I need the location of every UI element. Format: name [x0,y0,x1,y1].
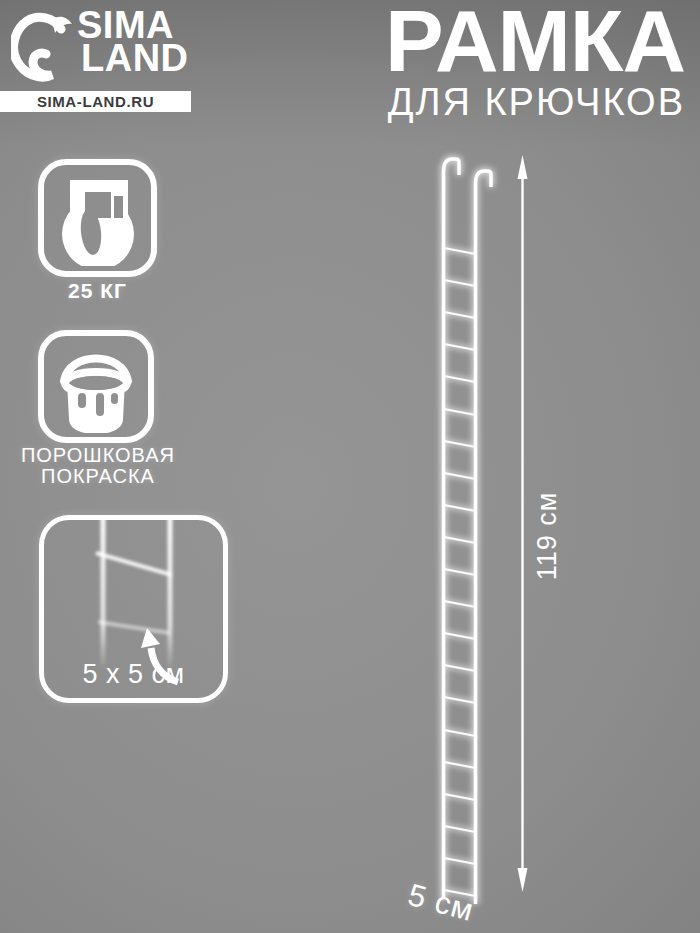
product-infographic: SIMA LAND SIMA-LAND.RU РАМКА ДЛЯ КРЮЧКОВ [0,0,700,933]
height-dimension-arrow [518,155,528,892]
hook-frame-product-image [0,0,700,933]
height-dimension-label: 119 см [532,492,563,581]
